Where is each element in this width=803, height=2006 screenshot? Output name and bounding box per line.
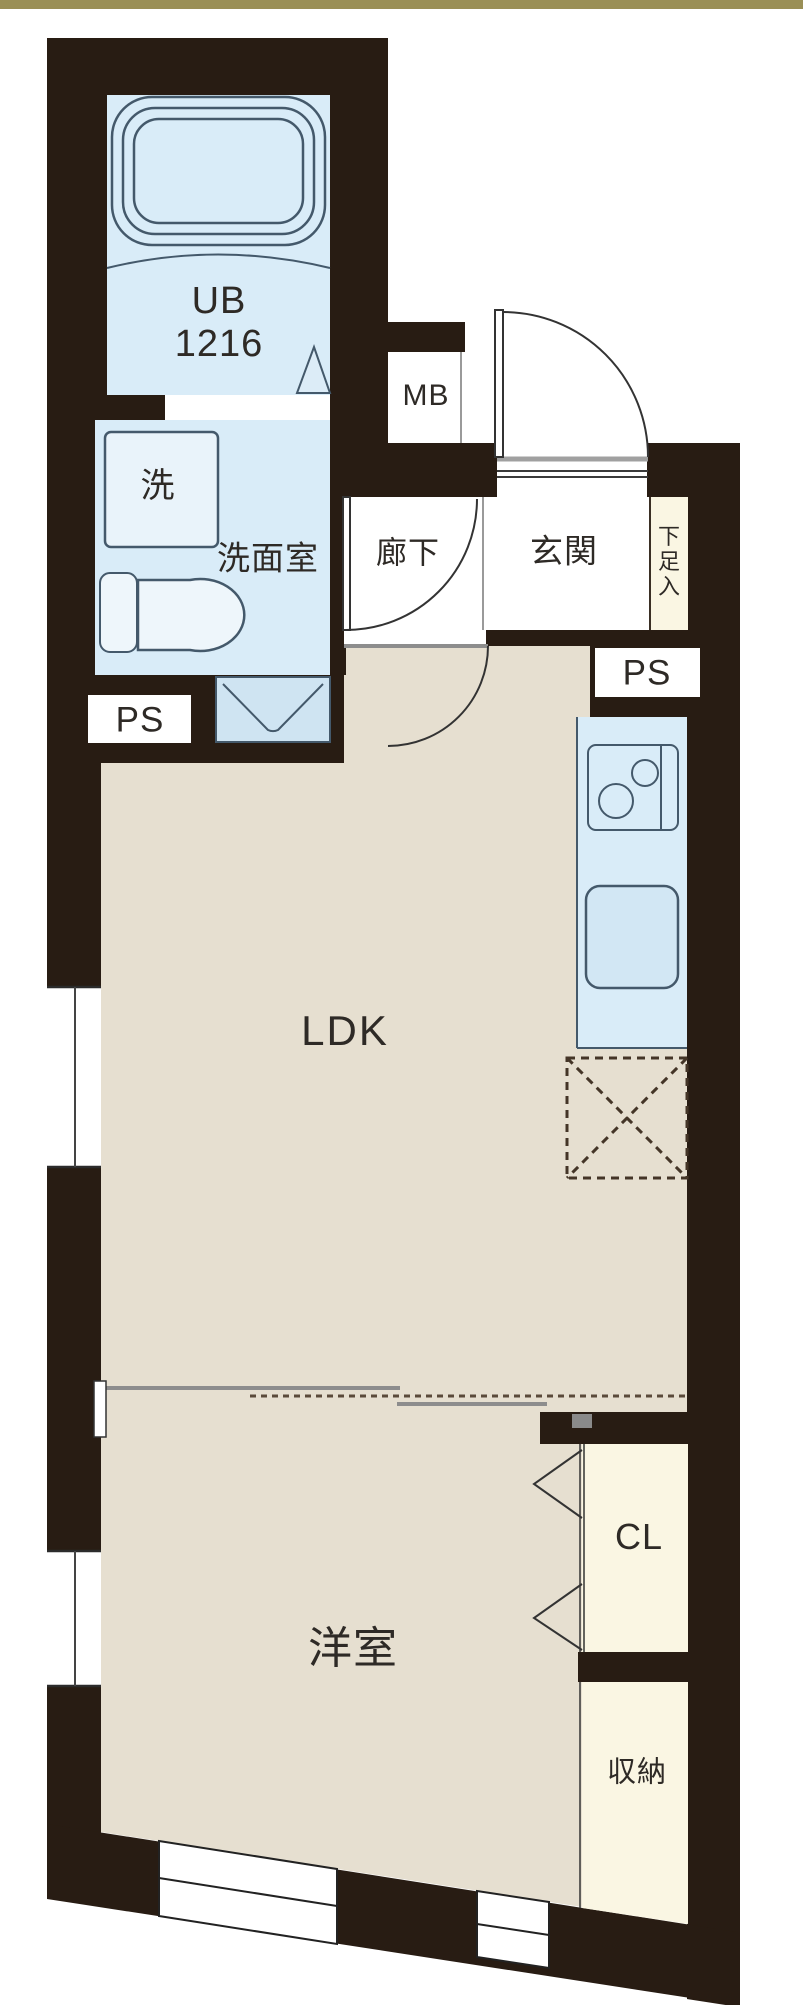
wall-closet-divider (578, 1652, 688, 1682)
label-closet: CL (615, 1519, 663, 1555)
partition-stop (572, 1414, 592, 1428)
label-hallway: 廊下 (376, 538, 440, 569)
label-shoe-cabinet: 下足入 (656, 525, 678, 600)
window-bottom-small (477, 1891, 549, 1968)
label-unit-bath-line2: 1216 (175, 325, 264, 363)
room-hallway (344, 497, 486, 646)
label-pipe-space-left: PS (116, 703, 165, 738)
label-ldk: LDK (301, 1010, 389, 1052)
window-left-ldk (47, 987, 101, 1167)
label-meter-box: MB (403, 381, 450, 411)
label-pipe-space-right: PS (623, 656, 672, 691)
wall-entrance-step (483, 630, 590, 646)
wall-mb-top (388, 322, 465, 352)
wall-closet-stub (540, 1412, 688, 1444)
room-entrance-west (483, 497, 497, 630)
label-western-room: 洋室 (308, 1627, 398, 1671)
floor-plan-drawing (0, 0, 803, 2006)
label-entrance: 玄関 (530, 535, 598, 568)
kitchen-counter (577, 717, 687, 1048)
label-storage: 収納 (607, 1759, 667, 1788)
ub-door-opening (165, 395, 330, 420)
label-washroom: 洗面室 (217, 542, 319, 575)
wall-hallway-top (388, 443, 502, 497)
label-unit-bath-line1: UB (192, 282, 247, 320)
wall-tower-extension (330, 420, 388, 497)
entrance-door-icon (495, 310, 648, 477)
kitchen-sink-icon (586, 886, 678, 988)
label-washing-machine: 洗 (141, 469, 176, 503)
wash-basin (216, 677, 330, 742)
window-left-bedroom (47, 1551, 101, 1686)
toilet-icon (100, 573, 244, 652)
partition-pocket (94, 1381, 106, 1437)
room-storage (582, 1682, 688, 1924)
floor-plan-page: UB 1216 MB 洗 洗面室 廊下 玄関 下足入 PS PS LDK 洋室 … (0, 0, 803, 2006)
